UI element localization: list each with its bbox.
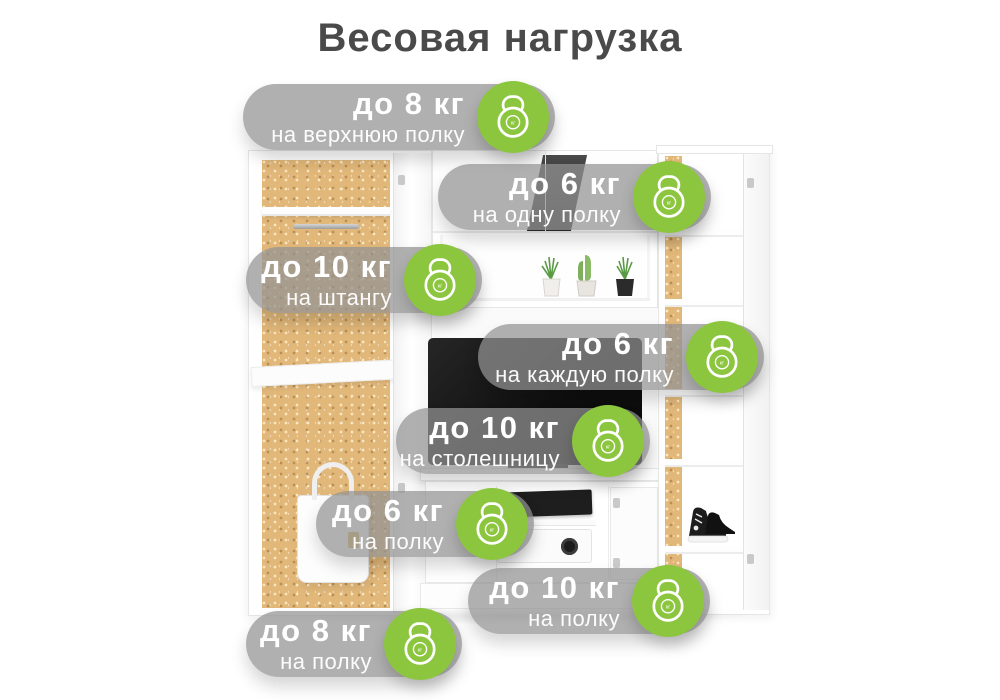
kettlebell-icon: кг	[572, 405, 644, 477]
plants-decor	[537, 249, 643, 303]
svg-text:кг: кг	[418, 648, 422, 654]
svg-text:кг: кг	[490, 528, 494, 534]
tower-top	[656, 145, 773, 154]
page-title: Весовая нагрузка	[0, 16, 1000, 61]
badge-text: до 8 кг на верхнюю полку	[271, 88, 465, 146]
tower-shelf	[665, 299, 743, 307]
kettlebell-icon: кг	[632, 565, 704, 637]
badge-rod: до 10 кг на штангу кг	[246, 247, 482, 313]
wardrobe-top-shelf	[262, 207, 390, 216]
badge-target: на полку	[528, 608, 620, 630]
media-divider	[608, 486, 609, 580]
badge-text: до 10 кг на штангу	[261, 251, 392, 309]
kettlebell-icon: кг	[633, 161, 705, 233]
badge-weight: до 10 кг	[429, 412, 560, 443]
svg-text:кг: кг	[511, 121, 515, 127]
media-door	[610, 487, 658, 580]
svg-text:кг: кг	[666, 605, 670, 611]
wardrobe-clothes-rod	[293, 224, 359, 229]
badge-weight: до 6 кг	[332, 495, 444, 526]
badge-text: до 10 кг на столешницу	[400, 412, 560, 470]
badge-target: на каждую полку	[495, 364, 674, 386]
kettlebell-icon: кг	[384, 608, 456, 680]
svg-text:кг: кг	[606, 445, 610, 451]
badge-single-shelf: до 6 кг на одну полку кг	[438, 164, 711, 230]
badge-weight: до 8 кг	[260, 615, 372, 646]
tower-shelf	[665, 459, 743, 467]
badge-target: на одну полку	[473, 204, 621, 226]
hinge-icon	[747, 178, 754, 188]
kettlebell-icon: кг	[686, 321, 758, 393]
badge-weight: до 10 кг	[489, 572, 620, 603]
badge-shelf-8kg: до 8 кг на полку кг	[246, 611, 462, 677]
kettlebell-icon: кг	[477, 81, 549, 153]
badge-target: на верхнюю полку	[271, 124, 465, 146]
tower-shelf	[665, 546, 743, 554]
hinge-icon	[613, 498, 620, 508]
hinge-icon	[747, 554, 754, 564]
badge-shelf-6kg: до 6 кг на полку кг	[316, 491, 534, 557]
badge-weight: до 8 кг	[353, 88, 465, 119]
badge-target: на полку	[280, 651, 372, 673]
badge-text: до 8 кг на полку	[260, 615, 372, 673]
projector-lens	[561, 538, 578, 555]
infographic-weight-load: Весовая нагрузка	[0, 0, 1000, 700]
kettlebell-icon: кг	[456, 488, 528, 560]
svg-text:кг: кг	[720, 361, 724, 367]
kettlebell-icon: кг	[404, 244, 476, 316]
svg-text:кг: кг	[667, 201, 671, 207]
badge-weight: до 6 кг	[562, 328, 674, 359]
badge-target: на столешницу	[400, 448, 560, 470]
hinge-icon	[613, 558, 620, 568]
badge-target: на полку	[352, 531, 444, 553]
sneakers	[679, 500, 737, 546]
badge-each-shelf: до 6 кг на каждую полку кг	[478, 324, 764, 390]
badge-top-shelf: до 8 кг на верхнюю полку кг	[243, 84, 555, 150]
badge-countertop: до 10 кг на столешницу кг	[396, 408, 650, 474]
badge-weight: до 10 кг	[261, 251, 392, 282]
badge-text: до 6 кг на одну полку	[473, 168, 621, 226]
svg-text:кг: кг	[438, 284, 442, 290]
badge-shelf-10kg: до 10 кг на полку кг	[468, 568, 710, 634]
badge-target: на штангу	[286, 287, 392, 309]
badge-text: до 6 кг на каждую полку	[495, 328, 674, 386]
badge-weight: до 6 кг	[509, 168, 621, 199]
hinge-icon	[398, 175, 405, 185]
badge-text: до 6 кг на полку	[332, 495, 444, 553]
badge-text: до 10 кг на полку	[489, 572, 620, 630]
